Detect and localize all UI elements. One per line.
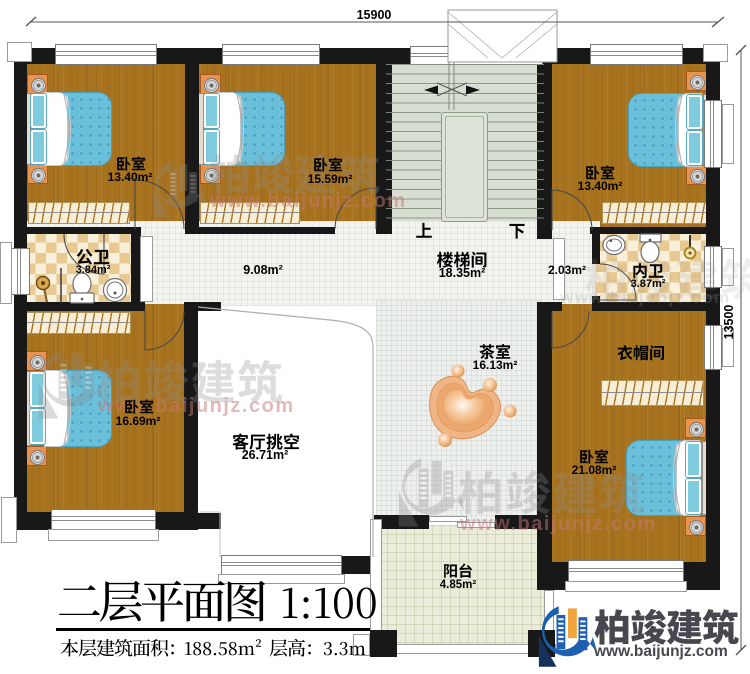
svg-text:www.baijunjz.com: www.baijunjz.com (209, 190, 407, 212)
svg-text:www.baijunjz.com: www.baijunjz.com (459, 513, 657, 535)
svg-text:13.40m²: 13.40m² (108, 170, 153, 184)
svg-text:13500: 13500 (722, 305, 736, 340)
svg-text:21.08m²: 21.08m² (572, 463, 617, 477)
svg-text:9.08m²: 9.08m² (243, 263, 283, 277)
svg-text:2.03m²: 2.03m² (548, 263, 586, 277)
svg-text:4.85m²: 4.85m² (440, 579, 477, 591)
svg-text:3.84m²: 3.84m² (76, 264, 111, 276)
svg-text:18.35m²: 18.35m² (439, 266, 486, 280)
svg-text:www.baijunjz.com: www.baijunjz.com (559, 288, 731, 307)
svg-text:26.71m²: 26.71m² (242, 448, 289, 462)
svg-text:13.40m²: 13.40m² (578, 179, 623, 193)
svg-text:www.baijunjz.com: www.baijunjz.com (593, 643, 728, 660)
svg-text:16.69m²: 16.69m² (116, 414, 161, 428)
svg-text:15900: 15900 (357, 8, 392, 22)
svg-text:16.13m²: 16.13m² (473, 358, 518, 372)
svg-text:15.59m²: 15.59m² (308, 172, 353, 186)
svg-text:3.87m²: 3.87m² (631, 278, 666, 290)
